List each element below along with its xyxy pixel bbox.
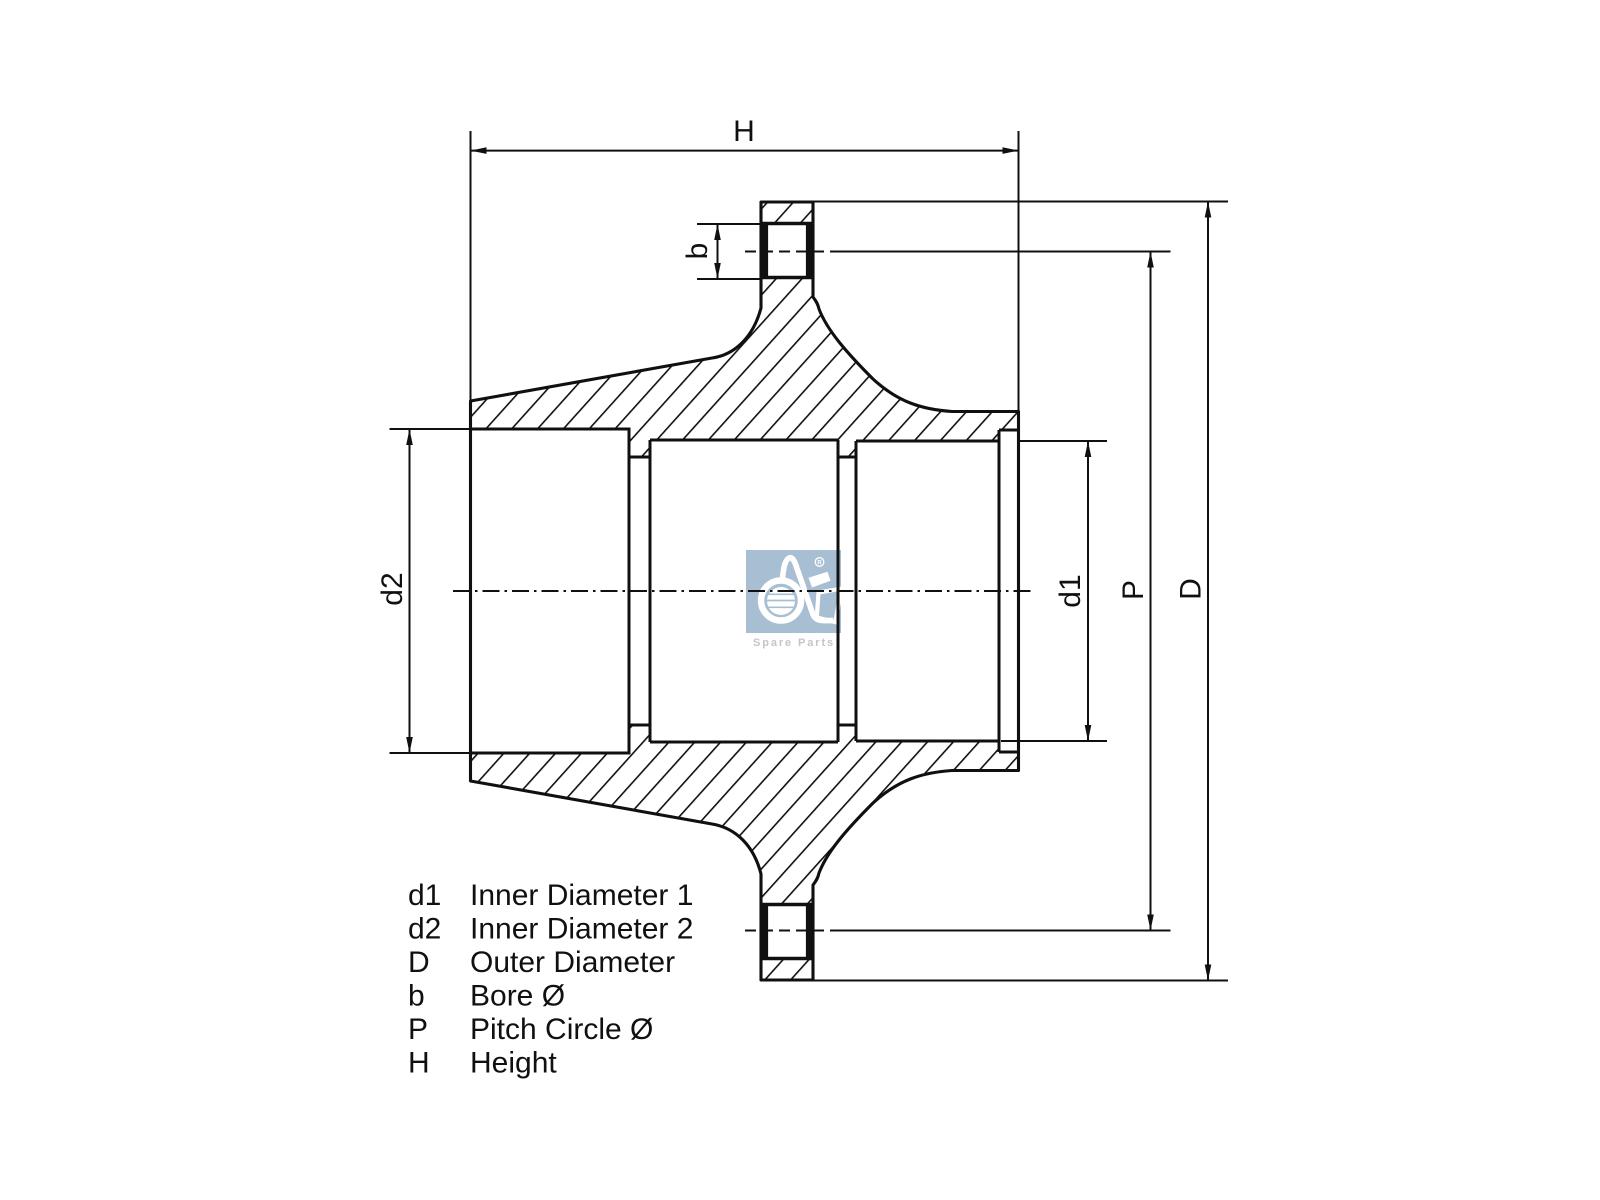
svg-text:P: P (1117, 580, 1150, 600)
svg-text:H: H (733, 115, 755, 148)
svg-text:D: D (1175, 578, 1208, 600)
svg-text:Inner Diameter 1: Inner Diameter 1 (470, 879, 693, 912)
svg-text:d1: d1 (408, 879, 441, 912)
svg-text:Spare Parts: Spare Parts (753, 637, 835, 649)
svg-text:b: b (681, 243, 714, 260)
svg-text:d2: d2 (376, 572, 409, 605)
svg-text:Outer Diameter: Outer Diameter (470, 946, 675, 979)
svg-text:Bore Ø: Bore Ø (470, 980, 565, 1013)
svg-text:P: P (408, 1013, 428, 1046)
svg-text:d2: d2 (408, 913, 441, 946)
svg-text:R: R (817, 561, 822, 567)
svg-text:Pitch Circle Ø: Pitch Circle Ø (470, 1013, 653, 1046)
svg-text:Height: Height (470, 1047, 557, 1080)
svg-text:D: D (408, 946, 430, 979)
svg-text:H: H (408, 1047, 430, 1080)
svg-text:d1: d1 (1054, 574, 1087, 607)
svg-text:b: b (408, 980, 425, 1013)
svg-text:Inner Diameter 2: Inner Diameter 2 (470, 913, 693, 946)
